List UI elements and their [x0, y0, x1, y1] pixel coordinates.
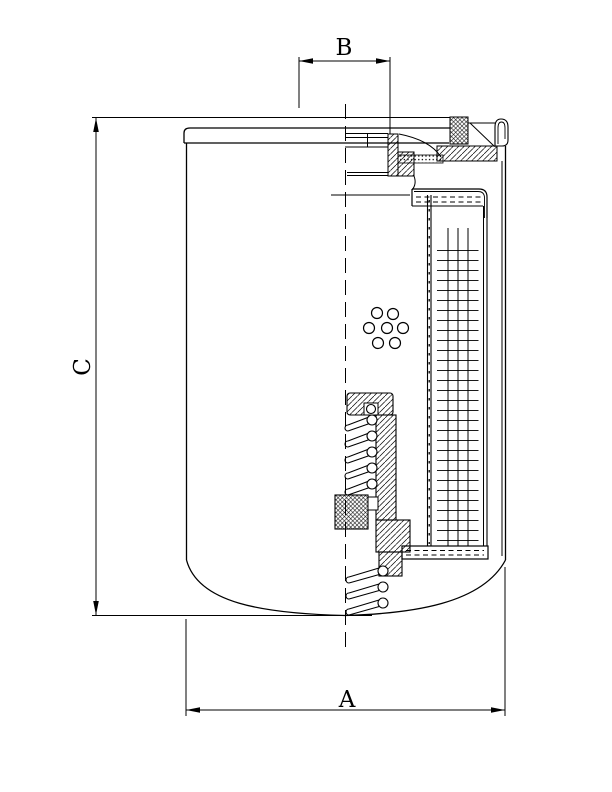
can-bottom-dome — [187, 560, 346, 616]
seal-gasket — [450, 117, 468, 144]
filter-element — [402, 189, 488, 559]
tapping-plate-section — [437, 146, 497, 161]
relief-valve-section — [347, 393, 410, 576]
coil-spring-lower — [346, 566, 388, 615]
dim-label-b: B — [336, 35, 353, 61]
coil-spring-upper — [345, 415, 377, 495]
top-seam-lip — [184, 128, 450, 143]
element-bottom-cap — [402, 546, 488, 559]
dim-c-arrow-top — [93, 118, 99, 132]
filter-cross-section-drawing: B C A — [0, 0, 612, 792]
element-right-wall — [484, 206, 488, 546]
baseplate-curl — [495, 119, 508, 147]
dim-a-arrow-left — [186, 707, 200, 713]
gasket-strip — [398, 155, 443, 163]
baseplate-assembly — [331, 117, 508, 195]
dim-c-arrow-bottom — [93, 601, 99, 615]
dimension-b: B — [299, 35, 390, 134]
dim-b-arrow-right — [376, 58, 390, 64]
dim-b-arrow-left — [299, 58, 313, 64]
thread-boss-section — [388, 134, 398, 176]
dim-label-c: C — [70, 358, 96, 376]
element-top-cap — [412, 189, 487, 218]
dim-a-arrow-right — [491, 707, 505, 713]
element-center-tube — [428, 195, 432, 546]
bypass-holes — [364, 308, 409, 349]
element-media-grid — [437, 228, 479, 546]
seam-diagonal — [470, 123, 494, 146]
dim-label-a: A — [338, 687, 356, 713]
technical-drawing-page: B C A — [0, 0, 612, 792]
seal-block — [335, 495, 378, 529]
